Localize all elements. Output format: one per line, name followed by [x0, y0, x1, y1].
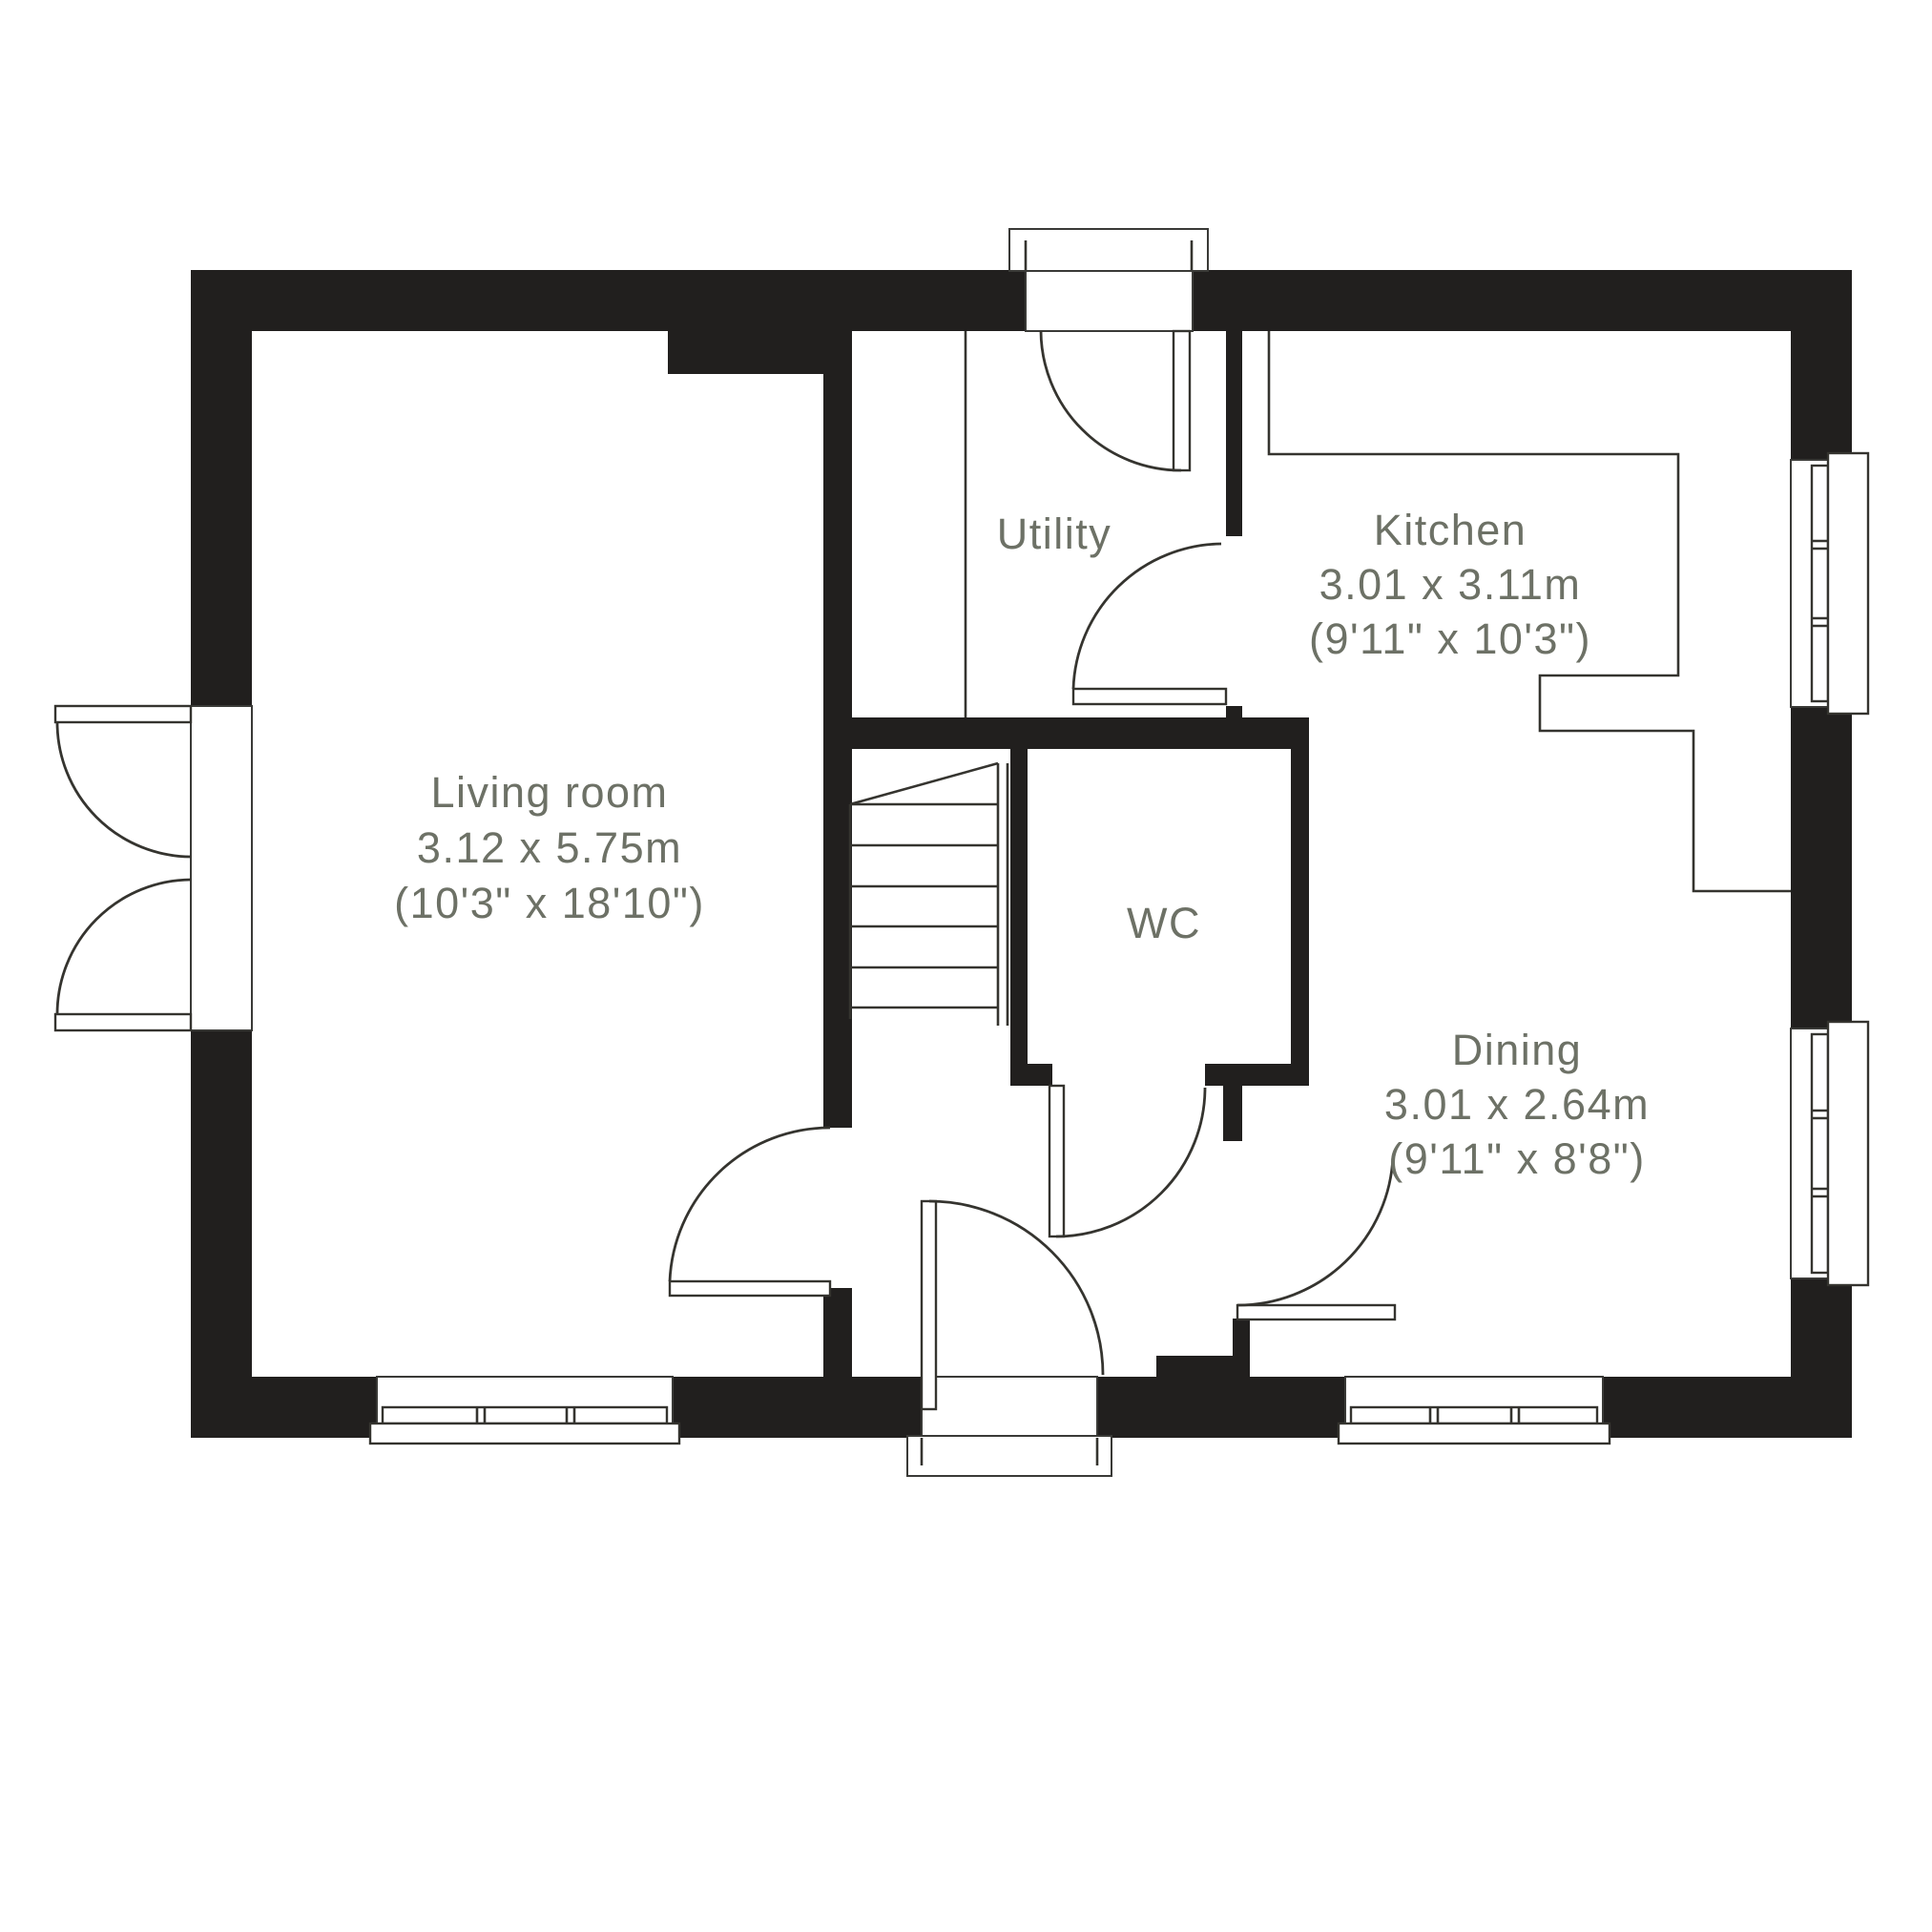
wall-right-upper	[1791, 270, 1852, 460]
dining-imperial: (9'11" x 8'8")	[1388, 1134, 1645, 1183]
french-doors	[55, 706, 252, 1030]
utility-external-door	[1009, 229, 1208, 470]
dining-door-leaf	[1237, 1305, 1395, 1319]
wall-wc-south-left	[1010, 1064, 1052, 1086]
wall-bottom-2	[673, 1377, 922, 1438]
kitchen-imperial: (9'11" x 10'3")	[1309, 614, 1591, 663]
wall-dining-stub-base	[1156, 1356, 1250, 1377]
kitchen-window	[1791, 453, 1868, 714]
living-room-window	[370, 1377, 679, 1444]
wall-top-right	[1193, 270, 1852, 331]
kitchen-utility-door-leaf	[1073, 689, 1226, 704]
wall-wc-south-right	[1205, 1064, 1309, 1086]
interior-walls	[668, 331, 1309, 1377]
wall-top-left	[191, 270, 1026, 331]
wall-utility-kitchen-lower	[1226, 706, 1242, 749]
utility-door-frame	[1009, 229, 1208, 271]
french-door-arc-top	[57, 722, 191, 857]
wall-left-upper	[191, 270, 252, 706]
kitchen-utility-door-arc	[1073, 544, 1221, 689]
dining-door	[1221, 1141, 1395, 1319]
stair-break-line	[850, 763, 998, 804]
wc-label: WC	[1127, 899, 1201, 947]
wall-utility-kitchen-upper	[1226, 331, 1242, 536]
utility-door-arc	[1041, 331, 1181, 470]
kitchen-metric: 3.01 x 3.11m	[1319, 560, 1582, 609]
dining-bottom-window	[1339, 1377, 1610, 1444]
living-room-imperial: (10'3" x 18'10")	[394, 879, 705, 927]
living-room-door	[670, 1128, 852, 1296]
front-door-frame	[907, 1436, 1111, 1476]
wall-right-middle	[1791, 707, 1852, 1028]
floor-plan-svg: Living room 3.12 x 5.75m (10'3" x 18'10"…	[0, 0, 1932, 1932]
dining-right-window	[1791, 1022, 1868, 1285]
wall-wc-east	[1291, 749, 1309, 1085]
floor-plan-page: Living room 3.12 x 5.75m (10'3" x 18'10"…	[0, 0, 1932, 1932]
kitchen-worktop	[1269, 331, 1791, 891]
windows	[370, 453, 1868, 1444]
dining-door-arc	[1237, 1156, 1393, 1305]
staircase	[850, 763, 1008, 1026]
dining-label: Dining	[1452, 1026, 1583, 1074]
wall-left-lower	[191, 1030, 252, 1438]
front-door	[907, 1201, 1111, 1476]
wc-door	[1049, 1064, 1205, 1236]
utility-door-leaf	[1174, 331, 1190, 470]
living-room-metric: 3.12 x 5.75m	[417, 823, 682, 872]
dining-metric: 3.01 x 2.64m	[1384, 1080, 1650, 1129]
utility-label: Utility	[997, 509, 1112, 558]
wall-living-east-stub	[823, 1288, 852, 1377]
wc-door-arc	[1056, 1088, 1205, 1236]
wall-dining-spur	[1223, 1086, 1242, 1145]
front-door-leaf	[922, 1201, 936, 1409]
living-room-label: Living room	[430, 768, 668, 817]
wc-door-leaf	[1049, 1086, 1064, 1236]
french-door-arc-bottom	[57, 880, 191, 1014]
french-door-leaf-top	[55, 706, 191, 722]
wall-bottom-4	[1603, 1377, 1852, 1438]
french-door-leaf-bottom	[55, 1014, 191, 1030]
wall-wc-west	[1010, 749, 1028, 1085]
living-room-door-leaf	[670, 1281, 830, 1296]
doors	[55, 229, 1395, 1476]
kitchen-label: Kitchen	[1374, 506, 1527, 554]
living-room-door-arc	[670, 1128, 830, 1281]
kitchen-utility-door	[1073, 536, 1244, 706]
wall-bottom-3	[1097, 1377, 1345, 1438]
front-door-arc	[929, 1201, 1103, 1375]
wall-bottom-1	[191, 1377, 377, 1438]
